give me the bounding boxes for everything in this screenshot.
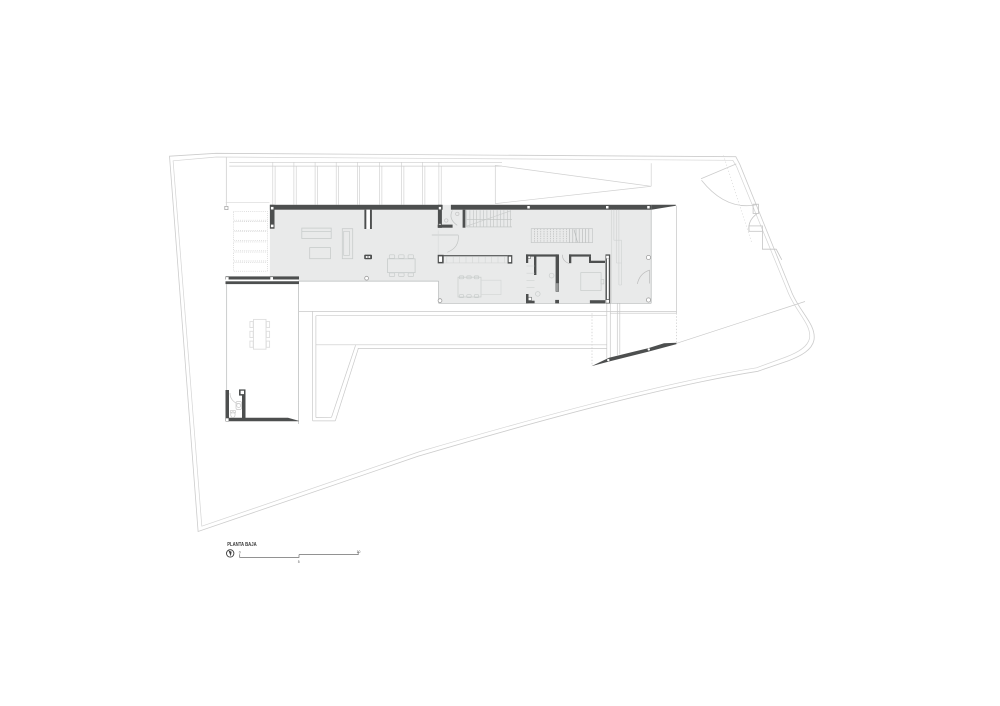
svg-text:10: 10 bbox=[357, 550, 361, 554]
svg-text:0: 0 bbox=[239, 550, 241, 554]
svg-text:5: 5 bbox=[298, 560, 300, 564]
svg-text:PLANTA BAJA: PLANTA BAJA bbox=[227, 542, 257, 548]
